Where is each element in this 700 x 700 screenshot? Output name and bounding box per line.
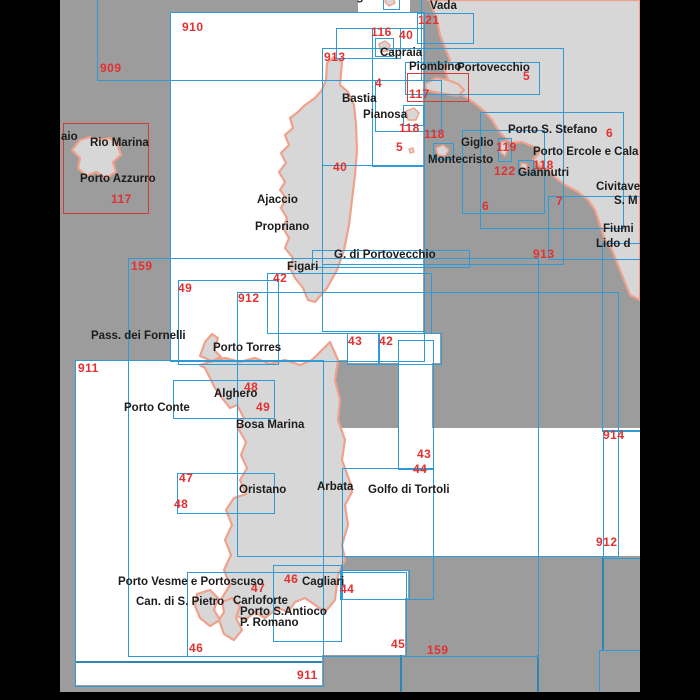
place-label-porto-conte: Porto Conte [124,403,190,415]
place-label-figari: Figari [287,262,318,274]
grid-line-v2 [537,655,539,692]
chart-number-121: 121 [418,14,440,26]
chart-number-912: 912 [238,292,260,304]
place-label-porto-vesme-e-portoscuso: Porto Vesme e Portoscuso [118,577,264,589]
chart-number-4: 4 [375,77,382,89]
place-label-aio: aio [61,132,78,144]
left-frame-bar [0,0,60,700]
place-label-montecristo: Montecristo [428,155,493,167]
chart-number-46: 46 [189,642,203,654]
chart-number-118: 118 [424,128,445,140]
place-label-pianosa: Pianosa [363,110,407,122]
place-label-propriano: Propriano [255,222,309,234]
chart-number-911: 911 [297,669,318,681]
place-label-ajaccio: Ajaccio [257,195,298,207]
place-label-porto-ercole-e-cala-g: Porto Ercole e Cala G [533,147,651,159]
place-label-pass-dei-fornelli: Pass. dei Fornelli [91,331,186,343]
chart-number-116: 116 [371,26,392,38]
chart-number-44: 44 [413,463,427,475]
chart-number-6: 6 [606,127,613,139]
chart-number-46: 46 [284,573,298,585]
place-label-p-romano: P. Romano [240,618,299,630]
chart-bottom-right-outline[interactable] [599,650,642,694]
chart-number-49: 49 [178,282,192,294]
chart-number-914: 914 [603,429,625,441]
chart-number-913: 913 [324,51,346,63]
grid-line-v3 [602,557,604,650]
place-label-arbata: Arbata [317,482,353,494]
place-label-bastia: Bastia [342,94,377,106]
place-label-gorgona: Gorgona [336,0,384,4]
chart-number-40: 40 [333,161,347,173]
chart-number-49: 49 [256,401,270,413]
chart-number-43: 43 [348,335,362,347]
chart-number-913: 913 [533,248,555,260]
grid-line-v1 [400,655,402,692]
chart-number-6: 6 [482,200,489,212]
chart-fiumicino-outline[interactable] [602,243,642,432]
place-label-giannutri: Giannutri [518,168,569,180]
chart-number-42: 42 [379,335,393,347]
place-label-porto-torres: Porto Torres [213,343,281,355]
place-label-portovecchio: Portovecchio [457,63,530,75]
place-label-porto-azzurro: Porto Azzurro [80,174,156,186]
chart-number-48: 48 [174,498,188,510]
chart-number-159: 159 [131,260,153,272]
right-frame-bar [640,0,700,700]
place-label-golfo-di-tortoli: Golfo di Tortoli [368,485,450,497]
place-label-civitave: Civitave [596,182,640,194]
chart-number-122: 122 [494,165,516,177]
place-label-porto-s-stefano: Porto S. Stefano [508,125,597,137]
place-label-fiumi: Fiumi [603,224,634,236]
place-label-vada: Vada [430,1,457,13]
bottom-frame-bar [60,692,640,700]
place-label-can-di-s-pietro: Can. di S. Pietro [136,597,224,609]
chart-number-117: 117 [111,193,132,205]
chart-index-map: 9099109131164012141171185118511911812266… [0,0,700,700]
chart-number-43: 43 [417,448,431,460]
chart-gorgona-outline[interactable] [383,0,400,10]
chart-number-5: 5 [396,141,403,153]
place-label-giglio: Giglio [461,138,494,150]
map-canvas: 9099109131164012141171185118511911812266… [0,0,700,700]
place-label-bosa-marina: Bosa Marina [236,420,304,432]
place-label-cagliari: Cagliari [302,577,344,589]
chart-number-118: 118 [399,122,420,134]
chart-number-117: 117 [409,88,430,100]
place-label-alghero: Alghero [214,389,257,401]
place-label-capraia: Capraia [380,48,422,60]
place-label-piombino: Piombino [409,62,461,74]
chart-number-119: 119 [496,141,517,153]
chart-number-912: 912 [596,536,618,548]
chart-number-42: 42 [273,272,287,284]
chart-number-911: 911 [78,362,99,374]
place-label-g-di-portovecchio: G. di Portovecchio [334,250,436,262]
chart-number-909: 909 [100,62,122,74]
chart-number-40: 40 [399,29,413,41]
place-label-oristano: Oristano [239,485,286,497]
chart-number-910: 910 [182,21,204,33]
place-label-rio-marina: Rio Marina [90,138,149,150]
place-label-s-m: S. M [614,196,638,208]
chart-number-47: 47 [179,472,193,484]
chart-number-45: 45 [391,638,405,650]
place-label-lido-d: Lido d [596,239,631,251]
chart-number-159: 159 [427,644,449,656]
chart-number-7: 7 [556,195,563,207]
